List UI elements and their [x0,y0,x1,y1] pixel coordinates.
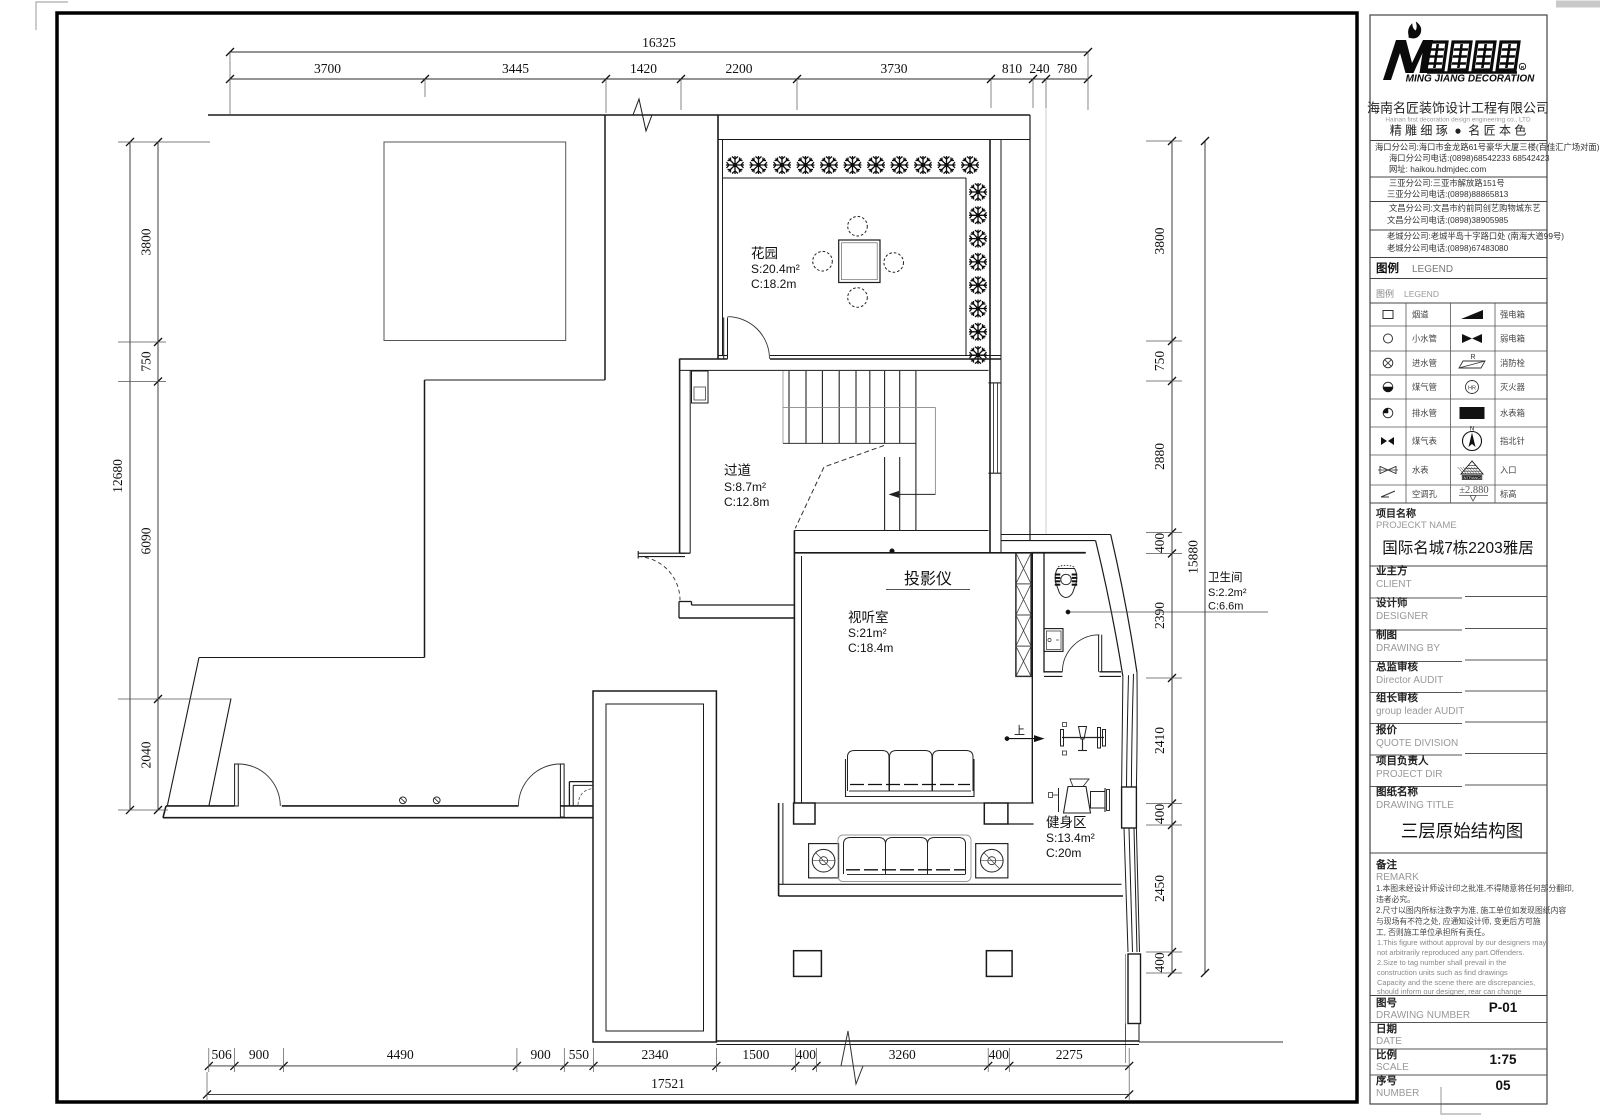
svg-text:LEGEND: LEGEND [1412,264,1453,275]
svg-text:项目负责人: 项目负责人 [1376,754,1429,767]
svg-text:12680: 12680 [110,459,125,493]
svg-text:1:75: 1:75 [1489,1052,1517,1067]
svg-text:2275: 2275 [1056,1047,1083,1062]
svg-text:老城分公司:老城半岛十字路口处 (南海大道99号): 老城分公司:老城半岛十字路口处 (南海大道99号) [1387,231,1564,241]
svg-text:过道: 过道 [724,463,751,478]
svg-text:±2.880: ±2.880 [1459,485,1488,496]
svg-text:900: 900 [249,1047,270,1062]
svg-text:业主方: 业主方 [1376,564,1408,577]
svg-text:1.本图未经设计师设计印之批准,不得随意将任何部分翻印,: 1.本图未经设计师设计印之批准,不得随意将任何部分翻印, [1376,883,1574,893]
svg-text:750: 750 [139,351,154,372]
svg-text:C:6.6m: C:6.6m [1208,601,1243,613]
svg-text:Director AUDIT: Director AUDIT [1376,675,1443,686]
svg-text:投影仪: 投影仪 [904,570,952,588]
svg-text:设计师: 设计师 [1376,596,1408,609]
svg-text:C:12.8m: C:12.8m [724,495,769,509]
svg-text:日期: 日期 [1376,1022,1397,1035]
svg-text:小水管: 小水管 [1412,334,1437,344]
svg-text:S:8.7m²: S:8.7m² [724,480,766,494]
svg-text:精 雕 细 琢 ● 名 匠 本 色: 精 雕 细 琢 ● 名 匠 本 色 [1390,123,1527,138]
svg-text:not arbitrarily reproduced any: not arbitrarily reproduced any part.Offe… [1377,948,1524,957]
svg-text:2.尺寸以图内所标注数字为准, 施工单位如发现图纸内容: 2.尺寸以图内所标注数字为准, 施工单位如发现图纸内容 [1376,905,1566,915]
svg-text:制图: 制图 [1376,628,1397,641]
svg-text:Hainan first decoration design: Hainan first decoration design engineeri… [1385,117,1531,124]
svg-text:与现场有不符之处, 应通知设计师, 变更后方可施: 与现场有不符之处, 应通知设计师, 变更后方可施 [1376,916,1541,926]
svg-text:S:13.4m²: S:13.4m² [1046,831,1095,845]
svg-text:进水管: 进水管 [1412,358,1437,368]
svg-text:ENTRANCE: ENTRANCE [1461,475,1483,480]
svg-text:灭火器: 灭火器 [1500,382,1526,392]
svg-text:三层原始结构图: 三层原始结构图 [1401,821,1524,841]
svg-text:S:21m²: S:21m² [848,626,887,640]
svg-text:2450: 2450 [1152,875,1167,902]
svg-text:视听室: 视听室 [848,609,889,625]
svg-text:海口分公司电话:(0898)68542233 6854242: 海口分公司电话:(0898)68542233 68542423 [1389,153,1550,163]
svg-text:400: 400 [989,1047,1010,1062]
svg-text:三亚分公司:三亚市解放路151号: 三亚分公司:三亚市解放路151号 [1389,178,1505,188]
svg-text:construction units such as fin: construction units such as find drawings [1377,968,1508,977]
svg-text:弱电箱: 弱电箱 [1500,334,1525,344]
svg-text:400: 400 [1152,952,1167,973]
svg-text:图例: 图例 [1376,261,1399,275]
svg-text:消防栓: 消防栓 [1500,358,1526,368]
svg-text:LEGEND: LEGEND [1404,289,1439,299]
svg-text:强电箱: 强电箱 [1500,310,1525,320]
svg-text:烟道: 烟道 [1412,310,1429,320]
svg-text:6090: 6090 [139,527,154,554]
svg-text:4490: 4490 [387,1047,414,1062]
svg-text:3800: 3800 [1152,227,1167,254]
svg-text:序号: 序号 [1376,1074,1397,1087]
svg-text:水表: 水表 [1412,465,1429,475]
svg-text:健身区: 健身区 [1046,815,1087,830]
svg-text:图纸名称: 图纸名称 [1376,785,1418,798]
svg-text:入口: 入口 [1500,465,1517,475]
svg-text:780: 780 [1057,61,1078,76]
svg-text:SCALE: SCALE [1376,1062,1409,1073]
svg-text:老城分公司电话:(0898)67483080: 老城分公司电话:(0898)67483080 [1387,243,1509,253]
svg-text:2340: 2340 [642,1047,669,1062]
svg-text:2410: 2410 [1152,727,1167,754]
svg-text:MING JIANG DECORATION: MING JIANG DECORATION [1406,74,1535,85]
svg-text:2390: 2390 [1152,602,1167,629]
svg-text:文昌分公司:文昌市约前同创艺购物城东艺: 文昌分公司:文昌市约前同创艺购物城东艺 [1389,203,1541,213]
svg-text:网址: haikou.hdmjdec.com: 网址: haikou.hdmjdec.com [1389,164,1486,174]
svg-text:16325: 16325 [642,35,676,50]
svg-text:900: 900 [530,1047,551,1062]
svg-text:3730: 3730 [881,61,908,76]
svg-text:报价: 报价 [1376,723,1398,736]
svg-text:DESIGNER: DESIGNER [1376,611,1428,622]
svg-text:CLIENT: CLIENT [1376,579,1412,590]
svg-text:空调孔: 空调孔 [1412,489,1438,499]
svg-text:17521: 17521 [651,1076,685,1091]
svg-text:花园: 花园 [751,246,778,261]
svg-text:REMARK: REMARK [1376,872,1419,883]
svg-text:P-01: P-01 [1489,1000,1518,1015]
svg-text:水表箱: 水表箱 [1500,408,1525,418]
svg-text:3260: 3260 [889,1047,916,1062]
svg-text:550: 550 [569,1047,590,1062]
svg-text:240: 240 [1029,61,1050,76]
svg-text:S:20.4m²: S:20.4m² [751,262,800,276]
svg-text:Capacity and the scene there a: Capacity and the scene there are discrep… [1377,978,1535,987]
svg-text:比例: 比例 [1376,1048,1397,1061]
svg-text:2880: 2880 [1152,443,1167,470]
svg-text:R: R [1470,354,1475,361]
svg-text:2040: 2040 [139,741,154,768]
svg-text:海南名匠装饰设计工程有限公司: 海南名匠装饰设计工程有限公司 [1367,101,1549,116]
svg-text:PROJECKT NAME: PROJECKT NAME [1376,520,1457,531]
svg-text:图例: 图例 [1376,288,1394,299]
svg-text:煤气管: 煤气管 [1412,382,1437,392]
svg-text:三亚分公司电话:(0898)88865813: 三亚分公司电话:(0898)88865813 [1387,189,1509,199]
svg-text:810: 810 [1002,61,1023,76]
svg-text:HR: HR [1468,386,1476,392]
svg-text:排水管: 排水管 [1412,408,1437,418]
svg-text:煤气表: 煤气表 [1412,436,1438,446]
svg-text:PROJECT DIR: PROJECT DIR [1376,769,1443,780]
svg-text:备注: 备注 [1375,858,1398,871]
svg-text:05: 05 [1495,1078,1511,1093]
svg-text:3800: 3800 [139,228,154,255]
svg-text:1420: 1420 [630,61,657,76]
svg-text:卫生间: 卫生间 [1208,570,1243,584]
svg-text:400: 400 [1152,804,1167,825]
svg-text:项目名称: 项目名称 [1376,507,1416,520]
svg-text:DRAWING BY: DRAWING BY [1376,643,1440,654]
svg-text:DRAWING TITLE: DRAWING TITLE [1376,800,1454,811]
svg-text:上: 上 [1014,724,1025,737]
svg-text:should inform our designer, re: should inform our designer, rear can cha… [1377,987,1522,996]
svg-text:C:18.2m: C:18.2m [751,277,796,291]
svg-text:C:20m: C:20m [1046,846,1081,860]
svg-text:750: 750 [1152,351,1167,372]
svg-text:1.This figure without approval: 1.This figure without approval by our de… [1377,938,1547,947]
svg-text:QUOTE DIVISION: QUOTE DIVISION [1376,738,1458,749]
svg-text:3700: 3700 [314,61,341,76]
svg-text:3445: 3445 [502,61,529,76]
svg-text:group leader AUDIT: group leader AUDIT [1376,706,1464,717]
svg-text:标高: 标高 [1500,489,1517,499]
svg-text:总监审核: 总监审核 [1376,660,1418,673]
svg-text:DRAWING NUMBER: DRAWING NUMBER [1376,1010,1470,1021]
svg-text:2.Size to tag number shall pre: 2.Size to tag number shall prevail in th… [1377,958,1506,967]
svg-text:NUMBER: NUMBER [1376,1088,1419,1099]
svg-text:组长审核: 组长审核 [1376,691,1418,704]
svg-text:15880: 15880 [1186,540,1201,574]
svg-text:C:18.4m: C:18.4m [848,641,893,655]
svg-text:工, 否则施工单位承担所有责任。: 工, 否则施工单位承担所有责任。 [1376,927,1490,937]
svg-text:图号: 图号 [1376,997,1397,1009]
svg-text:指北针: 指北针 [1500,436,1525,446]
svg-text:N: N [1470,427,1474,433]
svg-text:国际名城7栋2203雅居: 国际名城7栋2203雅居 [1382,539,1534,557]
svg-text:506: 506 [211,1047,232,1062]
svg-text:400: 400 [796,1047,817,1062]
svg-text:S:2.2m²: S:2.2m² [1208,587,1247,599]
svg-text:文昌分公司电话:(0898)38905985: 文昌分公司电话:(0898)38905985 [1387,215,1509,225]
svg-text:海口分公司:海口市金龙路61号豪华大厦三楼(百佳汇广场对面): 海口分公司:海口市金龙路61号豪华大厦三楼(百佳汇广场对面) [1375,142,1600,152]
svg-text:1500: 1500 [742,1047,769,1062]
svg-text:DATE: DATE [1376,1036,1402,1047]
svg-text:400: 400 [1152,533,1167,554]
svg-text:违者必究。: 违者必究。 [1376,894,1415,904]
svg-text:2200: 2200 [726,61,753,76]
